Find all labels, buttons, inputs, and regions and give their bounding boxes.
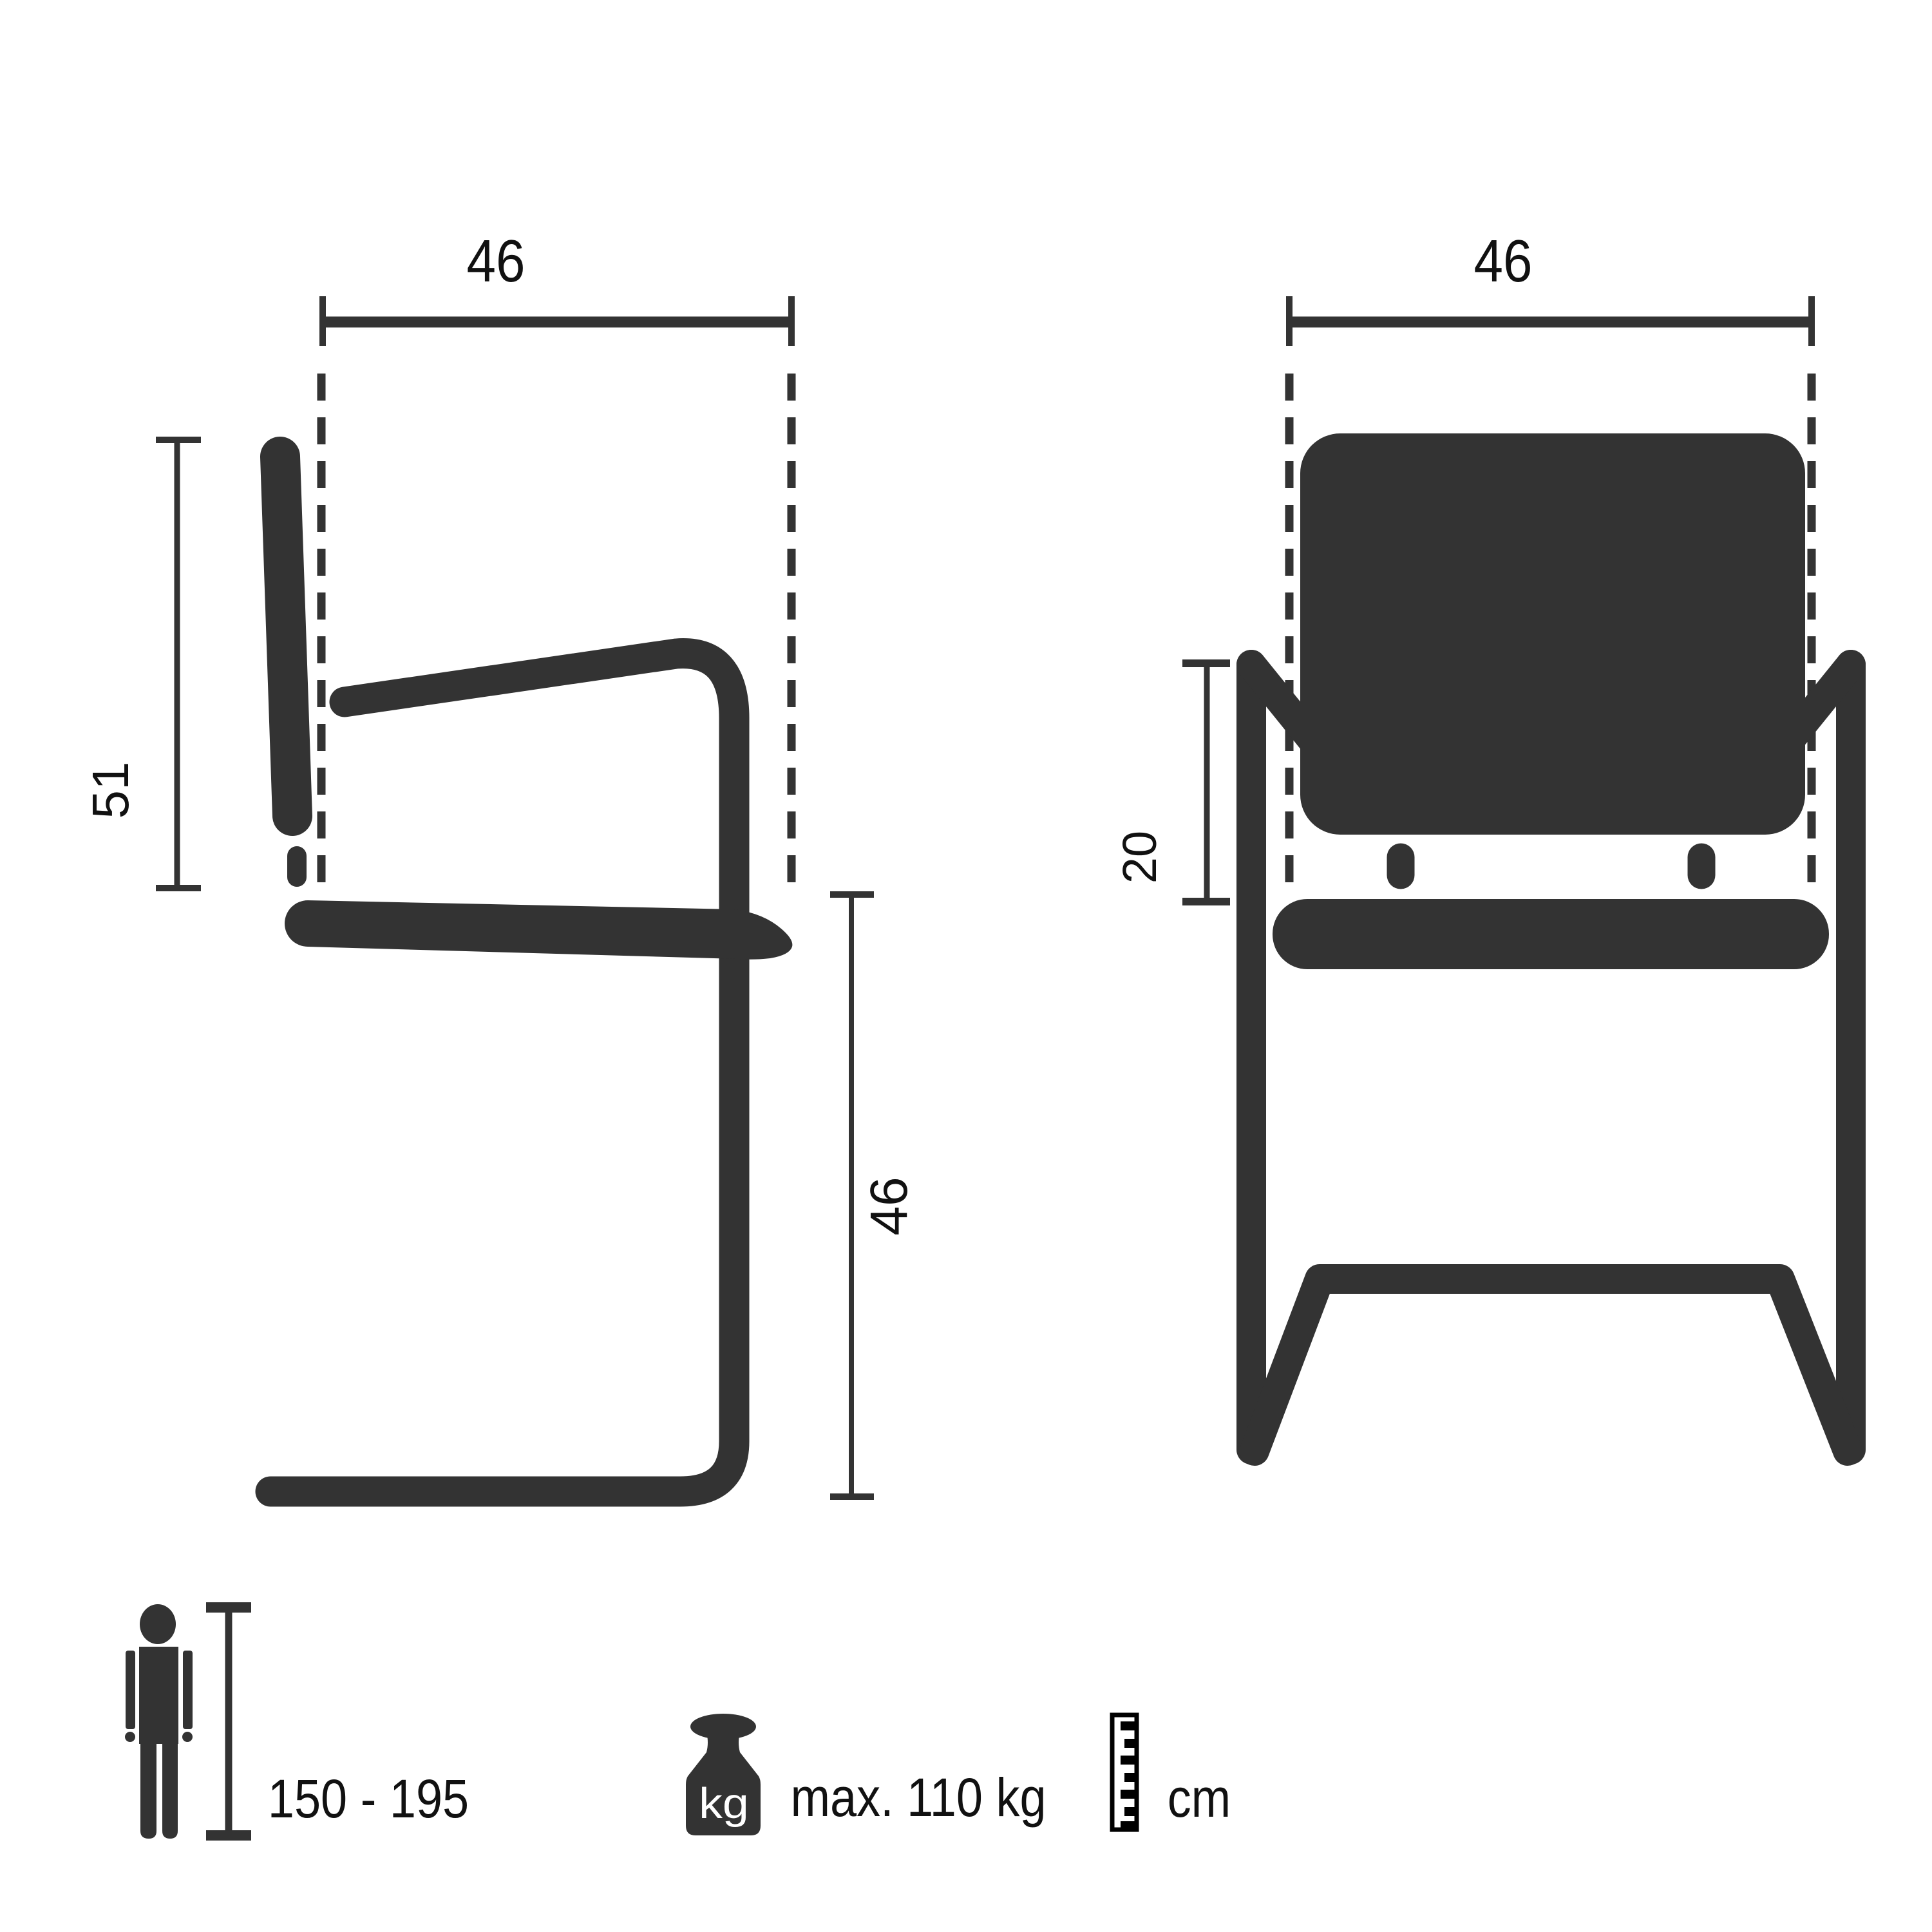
svg-text:51: 51 [82, 762, 139, 819]
svg-text:kg: kg [699, 1779, 749, 1827]
svg-text:46: 46 [466, 227, 525, 294]
svg-text:150 - 195: 150 - 195 [268, 1768, 469, 1829]
svg-text:46: 46 [860, 1177, 918, 1235]
svg-text:20: 20 [1113, 831, 1166, 884]
svg-text:max. 110 kg: max. 110 kg [790, 1767, 1046, 1828]
svg-text:46: 46 [1473, 227, 1532, 294]
svg-text:cm: cm [1168, 1768, 1231, 1828]
